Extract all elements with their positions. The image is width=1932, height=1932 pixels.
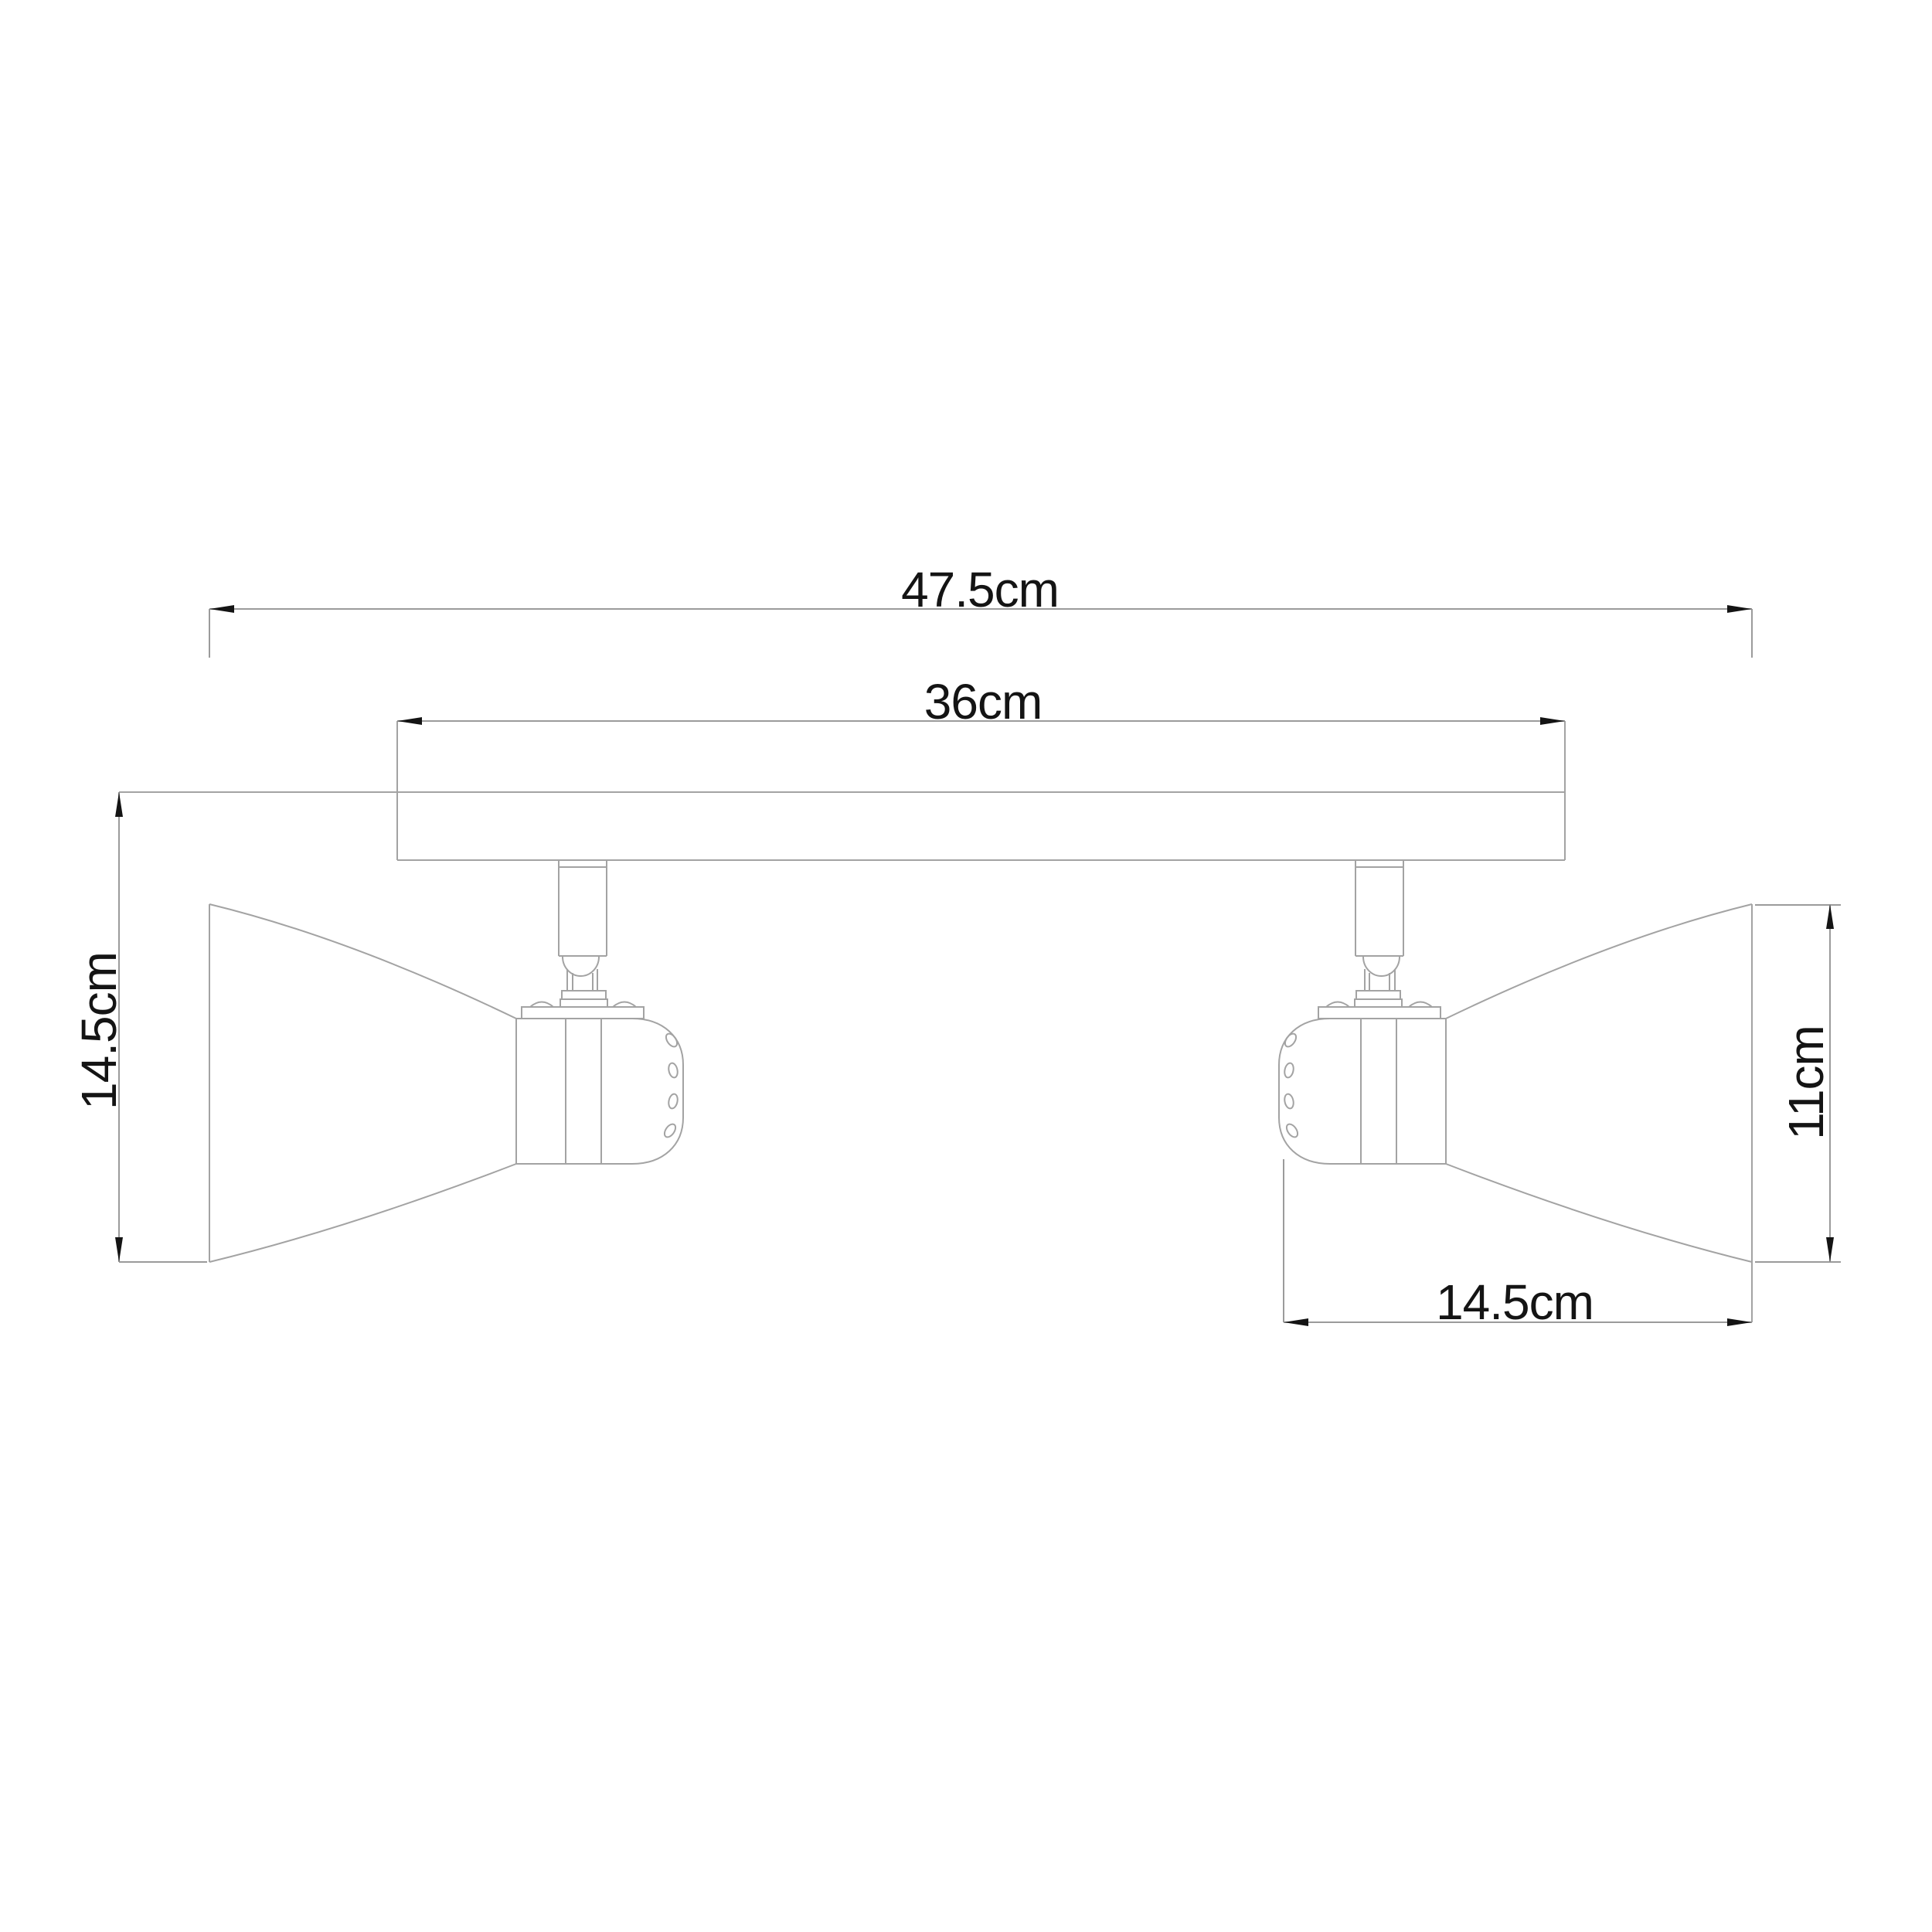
vent-hole xyxy=(1283,1032,1298,1049)
left-spotlight xyxy=(209,860,683,1262)
arrowhead-bottom xyxy=(1826,1237,1834,1262)
right-lamp-body xyxy=(1279,1019,1446,1164)
shade-top-profile xyxy=(1446,904,1752,1019)
vent-hole xyxy=(668,1094,679,1110)
technical-drawing: 47.5cm 36cm 14.5cm 11cm 14.5cm xyxy=(0,0,1932,1932)
dimension-head-length: 14.5cm xyxy=(1284,1159,1752,1330)
dim-label-fixture-height: 14.5cm xyxy=(71,952,127,1110)
left-stem xyxy=(559,860,607,956)
arrowhead-left xyxy=(1284,1318,1308,1326)
vent-hole xyxy=(662,1122,678,1139)
arrowhead-right xyxy=(1727,605,1752,613)
arrowhead-bottom xyxy=(115,1237,123,1262)
shade-bottom-profile xyxy=(209,1164,516,1262)
dim-label-shade-opening: 11cm xyxy=(1778,1026,1834,1140)
vent-hole xyxy=(1284,1063,1295,1079)
arrowhead-top xyxy=(115,792,123,817)
vent-hole xyxy=(1284,1122,1300,1139)
right-spotlight xyxy=(1279,860,1752,1322)
arrowhead-right xyxy=(1727,1318,1752,1326)
dimension-overall-width: 47.5cm xyxy=(209,562,1752,658)
shade-top-profile xyxy=(209,904,516,1019)
right-stem xyxy=(1355,860,1403,956)
right-shade xyxy=(1446,904,1752,1322)
ceiling-bar xyxy=(119,721,1565,860)
dim-label-bar-width: 36cm xyxy=(924,674,1043,730)
dim-label-head-length: 14.5cm xyxy=(1436,1274,1594,1330)
arrowhead-right xyxy=(1540,717,1565,725)
dim-label-overall-width: 47.5cm xyxy=(901,562,1059,617)
vent-hole xyxy=(1284,1094,1295,1110)
left-shade xyxy=(209,904,516,1262)
left-swivel-joint xyxy=(560,957,607,1007)
vent-hole xyxy=(668,1063,679,1079)
shade-bottom-profile xyxy=(1446,1164,1752,1262)
arrowhead-left xyxy=(209,605,234,613)
left-holder-plate xyxy=(522,1002,644,1019)
dimension-fixture-height: 14.5cm xyxy=(71,792,207,1262)
arrowhead-left xyxy=(397,717,422,725)
drawing-canvas: 47.5cm 36cm 14.5cm 11cm 14.5cm xyxy=(0,0,1932,1932)
arrowhead-top xyxy=(1826,904,1834,929)
dimension-bar-width: 36cm xyxy=(397,674,1565,730)
body-outline xyxy=(516,1019,683,1164)
vent-hole xyxy=(664,1032,679,1049)
right-holder-plate xyxy=(1318,1002,1440,1019)
right-swivel-joint xyxy=(1355,957,1402,1007)
body-outline xyxy=(1279,1019,1446,1164)
dimension-shade-opening: 11cm xyxy=(1755,904,1841,1262)
left-lamp-body xyxy=(516,1019,683,1164)
